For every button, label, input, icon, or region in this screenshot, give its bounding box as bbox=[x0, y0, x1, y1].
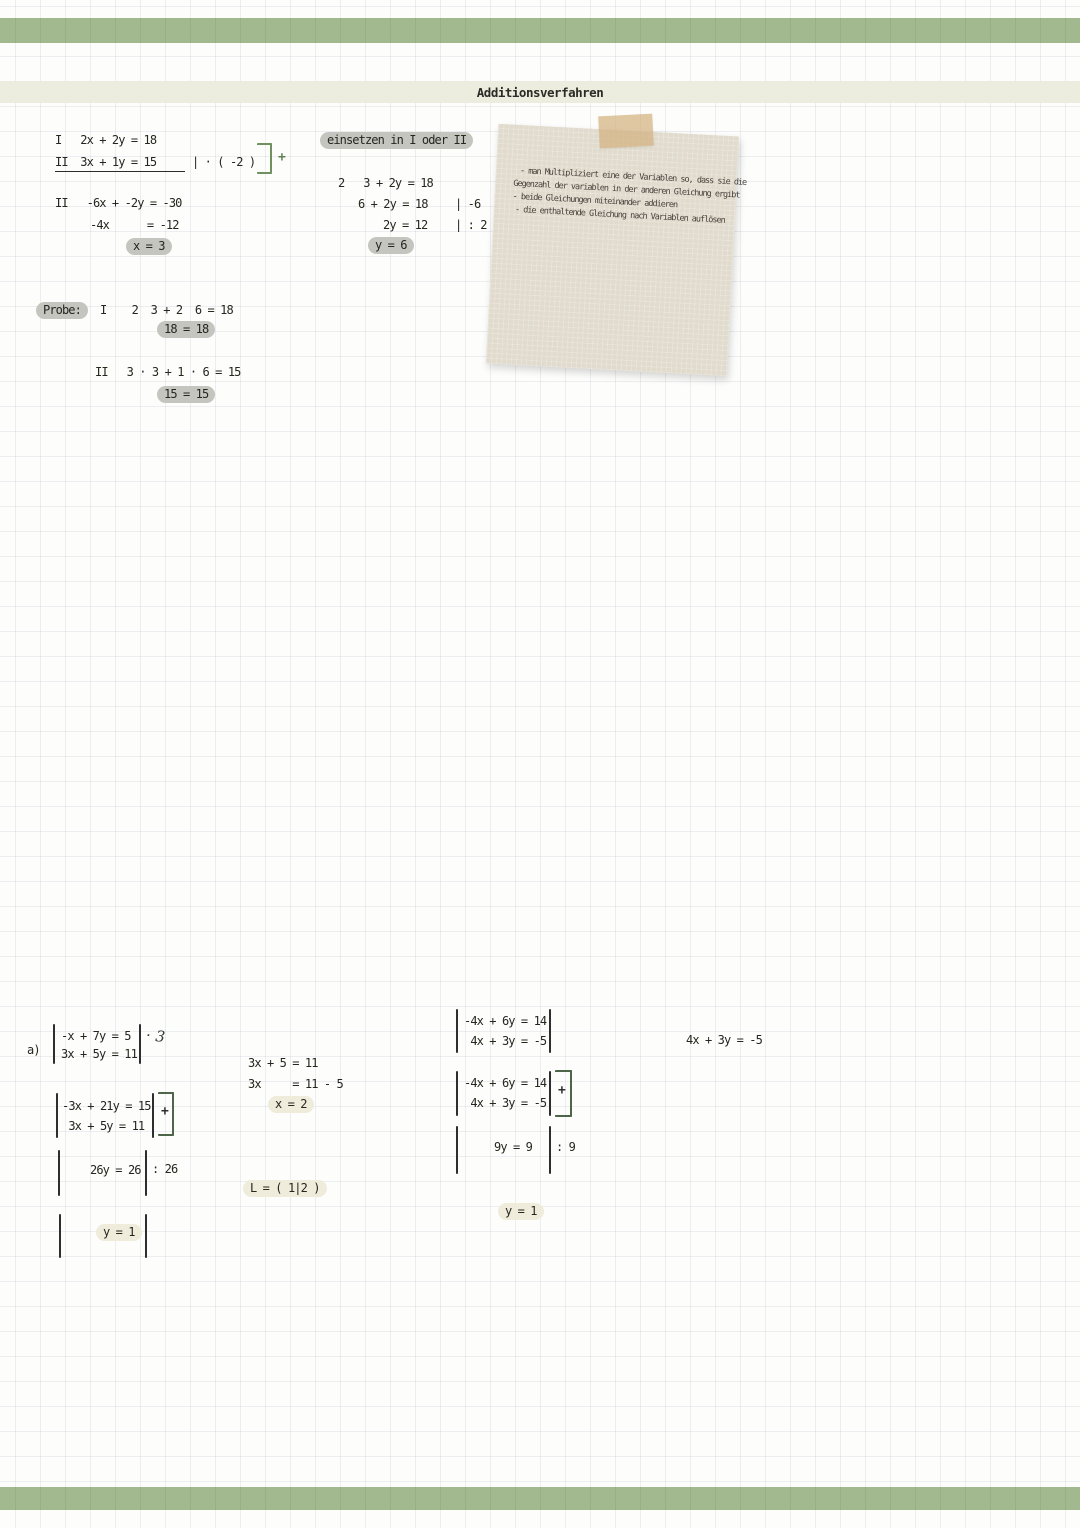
system-bar bbox=[139, 1024, 141, 1064]
a-system1-row1: -x + 7y = 5 bbox=[61, 1029, 131, 1044]
probe-result-II-highlight: 15 = 15 bbox=[157, 386, 215, 403]
bottom-banner bbox=[0, 1487, 1080, 1510]
a-solution-highlight: L = ( 1|2 ) bbox=[243, 1180, 327, 1197]
substitute-line-3: 2y = 12 bbox=[383, 218, 427, 233]
a-system2-row1: -3x + 21y = 15 bbox=[62, 1099, 151, 1114]
system-bar bbox=[145, 1150, 147, 1196]
system-bar bbox=[145, 1214, 147, 1258]
probe-label-highlight: Probe: bbox=[36, 302, 88, 319]
b-step-9y: 9y = 9 bbox=[494, 1140, 532, 1155]
a-step-26y: 26y = 26 bbox=[90, 1163, 141, 1178]
result-y-highlight: y = 6 bbox=[368, 237, 414, 254]
a-system1-operation: · 3 bbox=[145, 1026, 166, 1046]
substitute-line-2-operation: | -6 bbox=[455, 197, 480, 212]
equation-II-scaled: II -6x + -2y = -30 bbox=[55, 196, 182, 211]
substitute-line-3-operation: | : 2 bbox=[455, 218, 487, 233]
a-system2-row2: 3x + 5y = 11 bbox=[62, 1119, 144, 1134]
b-system2-row2: 4x + 3y = -5 bbox=[464, 1096, 546, 1111]
probe-line-II: II 3 · 3 + 1 · 6 = 15 bbox=[95, 365, 240, 380]
system-bar bbox=[549, 1009, 551, 1053]
a-substitute-line-1: 3x + 5 = 11 bbox=[248, 1056, 318, 1071]
system-bar bbox=[456, 1071, 458, 1116]
plus-sign: + bbox=[558, 1083, 566, 1098]
system-bar bbox=[59, 1214, 61, 1258]
notebook-page: Additionsverfahren I 2x + 2y = 18 II 3x … bbox=[0, 0, 1080, 1528]
b-system2-row1: -4x + 6y = 14 bbox=[464, 1076, 546, 1091]
b-result-y-highlight: y = 1 bbox=[498, 1203, 544, 1220]
add-bracket-icon bbox=[257, 143, 272, 174]
insert-label-highlight: einsetzen in I oder II bbox=[320, 132, 473, 149]
result-x-highlight: x = 3 bbox=[126, 238, 172, 255]
probe-line-I: I 2 3 + 2 6 = 18 bbox=[100, 303, 233, 318]
system-bar bbox=[58, 1150, 60, 1196]
sticky-note[interactable]: - man Multipliziert eine der Variablen s… bbox=[486, 124, 739, 376]
a-step-26y-operation: : 26 bbox=[152, 1162, 177, 1177]
equation-sum: -4x = -12 bbox=[90, 218, 179, 233]
system-bar bbox=[549, 1071, 551, 1116]
page-title: Additionsverfahren bbox=[477, 85, 603, 100]
equation-II: II 3x + 1y = 15 bbox=[55, 155, 156, 170]
a-result-x-highlight: x = 2 bbox=[268, 1096, 314, 1113]
top-banner bbox=[0, 18, 1080, 43]
system-bar bbox=[53, 1024, 55, 1064]
system-bar bbox=[56, 1093, 58, 1138]
equation-II-operation: | · ( -2 ) bbox=[192, 155, 255, 170]
system-bar bbox=[152, 1093, 154, 1138]
substitute-line-1: 2 3 + 2y = 18 bbox=[338, 176, 433, 191]
b-side-equation: 4x + 3y = -5 bbox=[686, 1033, 762, 1048]
a-substitute-line-2: 3x = 11 - 5 bbox=[248, 1077, 343, 1092]
probe-result-I-highlight: 18 = 18 bbox=[157, 321, 215, 338]
a-system1-row2: 3x + 5y = 11 bbox=[61, 1047, 137, 1062]
substitute-line-2: 6 + 2y = 18 bbox=[358, 197, 428, 212]
b-system1-row2: 4x + 3y = -5 bbox=[464, 1034, 546, 1049]
plus-sign: + bbox=[278, 150, 286, 165]
plus-sign: + bbox=[161, 1104, 169, 1119]
underline-equation-II bbox=[55, 171, 185, 172]
b-step-9y-operation: : 9 bbox=[556, 1140, 575, 1155]
system-bar bbox=[549, 1126, 551, 1174]
a-result-y-highlight: y = 1 bbox=[96, 1224, 142, 1241]
equation-I: I 2x + 2y = 18 bbox=[55, 133, 156, 148]
system-bar bbox=[456, 1126, 458, 1174]
title-band: Additionsverfahren bbox=[0, 81, 1080, 103]
system-bar bbox=[456, 1009, 458, 1053]
b-system1-row1: -4x + 6y = 14 bbox=[464, 1014, 546, 1029]
exercise-a-label: a) bbox=[27, 1043, 40, 1058]
tape-icon bbox=[598, 114, 654, 149]
